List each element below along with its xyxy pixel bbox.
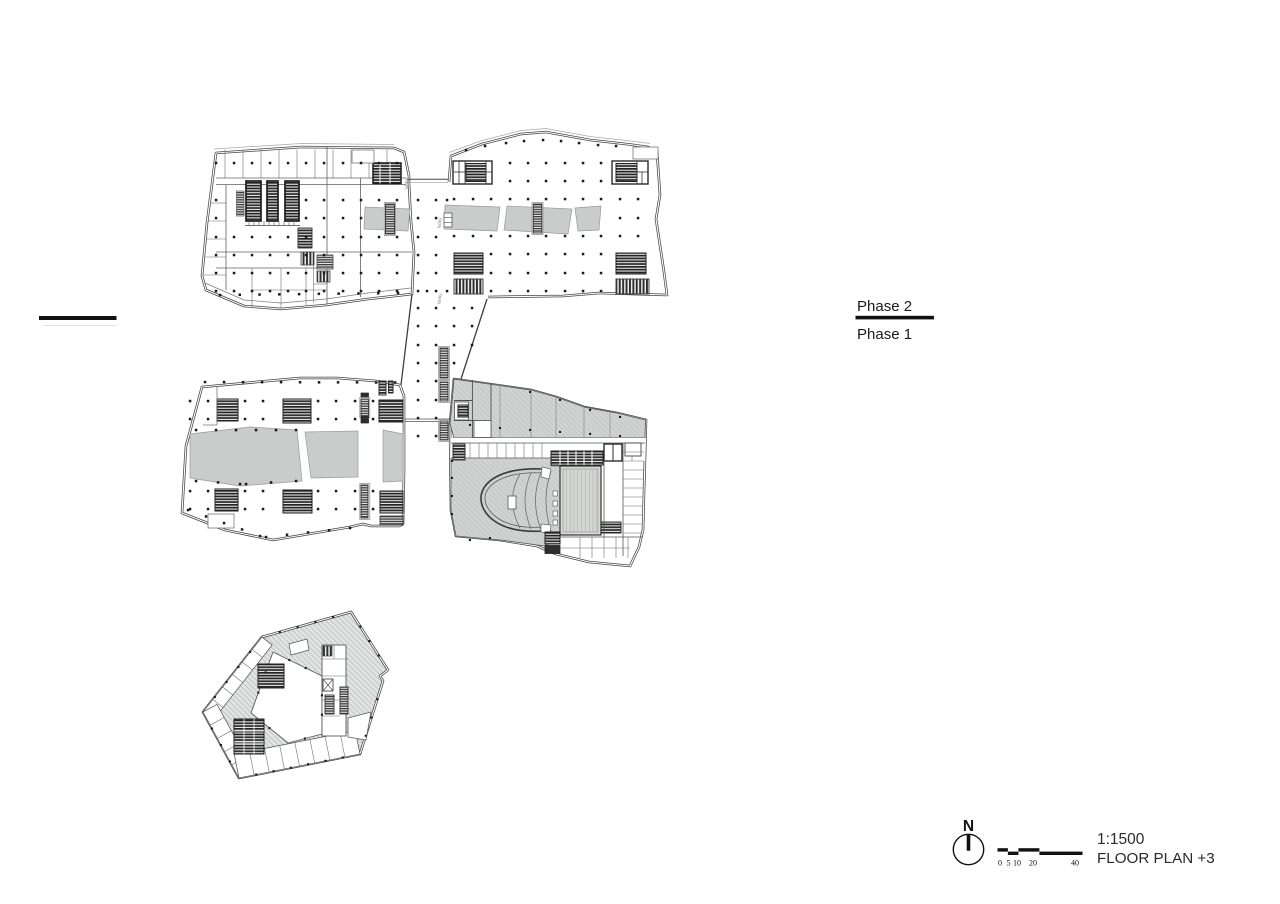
svg-text:Phase 1: Phase 1 [857, 326, 912, 343]
svg-text:20: 20 [1029, 859, 1037, 868]
svg-text:FLOOR PLAN +3: FLOOR PLAN +3 [1097, 850, 1215, 867]
svg-text:N: N [963, 818, 974, 835]
svg-text:10: 10 [1013, 859, 1021, 868]
svg-text:5: 5 [1007, 859, 1011, 868]
svg-text:0: 0 [998, 859, 1002, 868]
svg-text:lobby: lobby [404, 178, 409, 190]
svg-text:40: 40 [1071, 859, 1079, 868]
svg-text:Phase 2: Phase 2 [857, 298, 912, 315]
svg-text:1:1500: 1:1500 [1097, 831, 1145, 848]
